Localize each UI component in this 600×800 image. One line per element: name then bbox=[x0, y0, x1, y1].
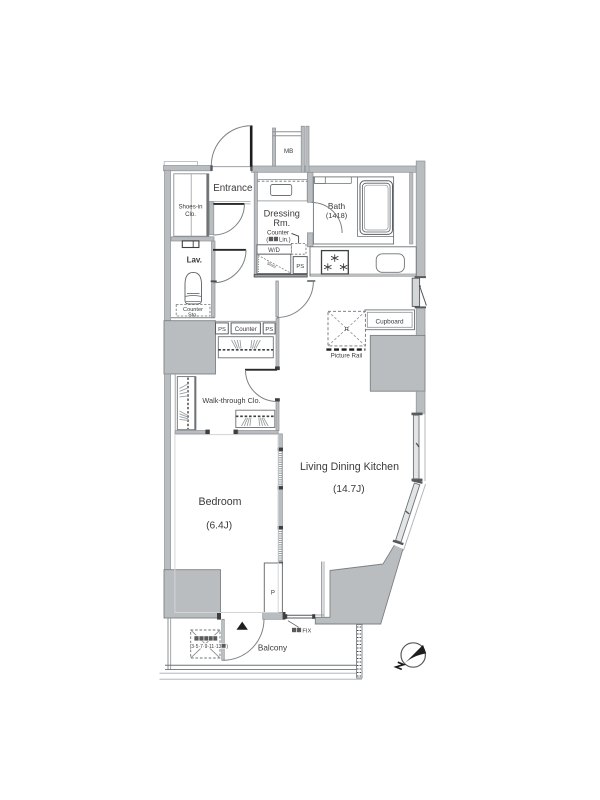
svg-text:Dressing: Dressing bbox=[264, 209, 300, 219]
svg-text:(: ( bbox=[266, 238, 268, 244]
svg-text:Lav.: Lav. bbox=[187, 256, 202, 265]
svg-text:FIX: FIX bbox=[302, 629, 311, 635]
svg-text:(3·5·7·9·11·13: (3·5·7·9·11·13 bbox=[190, 644, 222, 650]
svg-text:Counter: Counter bbox=[267, 230, 289, 237]
svg-text:P: P bbox=[271, 591, 275, 597]
svg-text:Entrance: Entrance bbox=[213, 183, 253, 194]
svg-text:Clo.: Clo. bbox=[185, 211, 196, 218]
svg-text:Counter: Counter bbox=[235, 326, 257, 333]
svg-text:Balcony: Balcony bbox=[258, 643, 288, 652]
svg-text:Walk-through Clo.: Walk-through Clo. bbox=[202, 396, 260, 405]
svg-text:(14.7J): (14.7J) bbox=[333, 484, 365, 495]
svg-text:Picture Rail: Picture Rail bbox=[331, 353, 363, 360]
svg-text:PS: PS bbox=[218, 327, 226, 333]
svg-text:(6.4J): (6.4J) bbox=[206, 521, 232, 532]
svg-text:Lin.): Lin.) bbox=[279, 238, 291, 244]
svg-text:W/D: W/D bbox=[268, 248, 280, 254]
svg-text:MB: MB bbox=[284, 148, 293, 155]
svg-text:PS: PS bbox=[265, 327, 273, 333]
svg-text:Shoes-in: Shoes-in bbox=[178, 204, 202, 211]
svg-text:Living Dining Kitchen: Living Dining Kitchen bbox=[300, 461, 399, 473]
svg-text:Bedroom: Bedroom bbox=[199, 496, 242, 508]
svg-text:PS: PS bbox=[296, 264, 304, 270]
svg-text:Sto.: Sto. bbox=[188, 312, 198, 318]
svg-text:R: R bbox=[345, 327, 349, 333]
svg-text:Rm.: Rm. bbox=[273, 218, 290, 228]
svg-text:Cupboard: Cupboard bbox=[375, 319, 404, 326]
